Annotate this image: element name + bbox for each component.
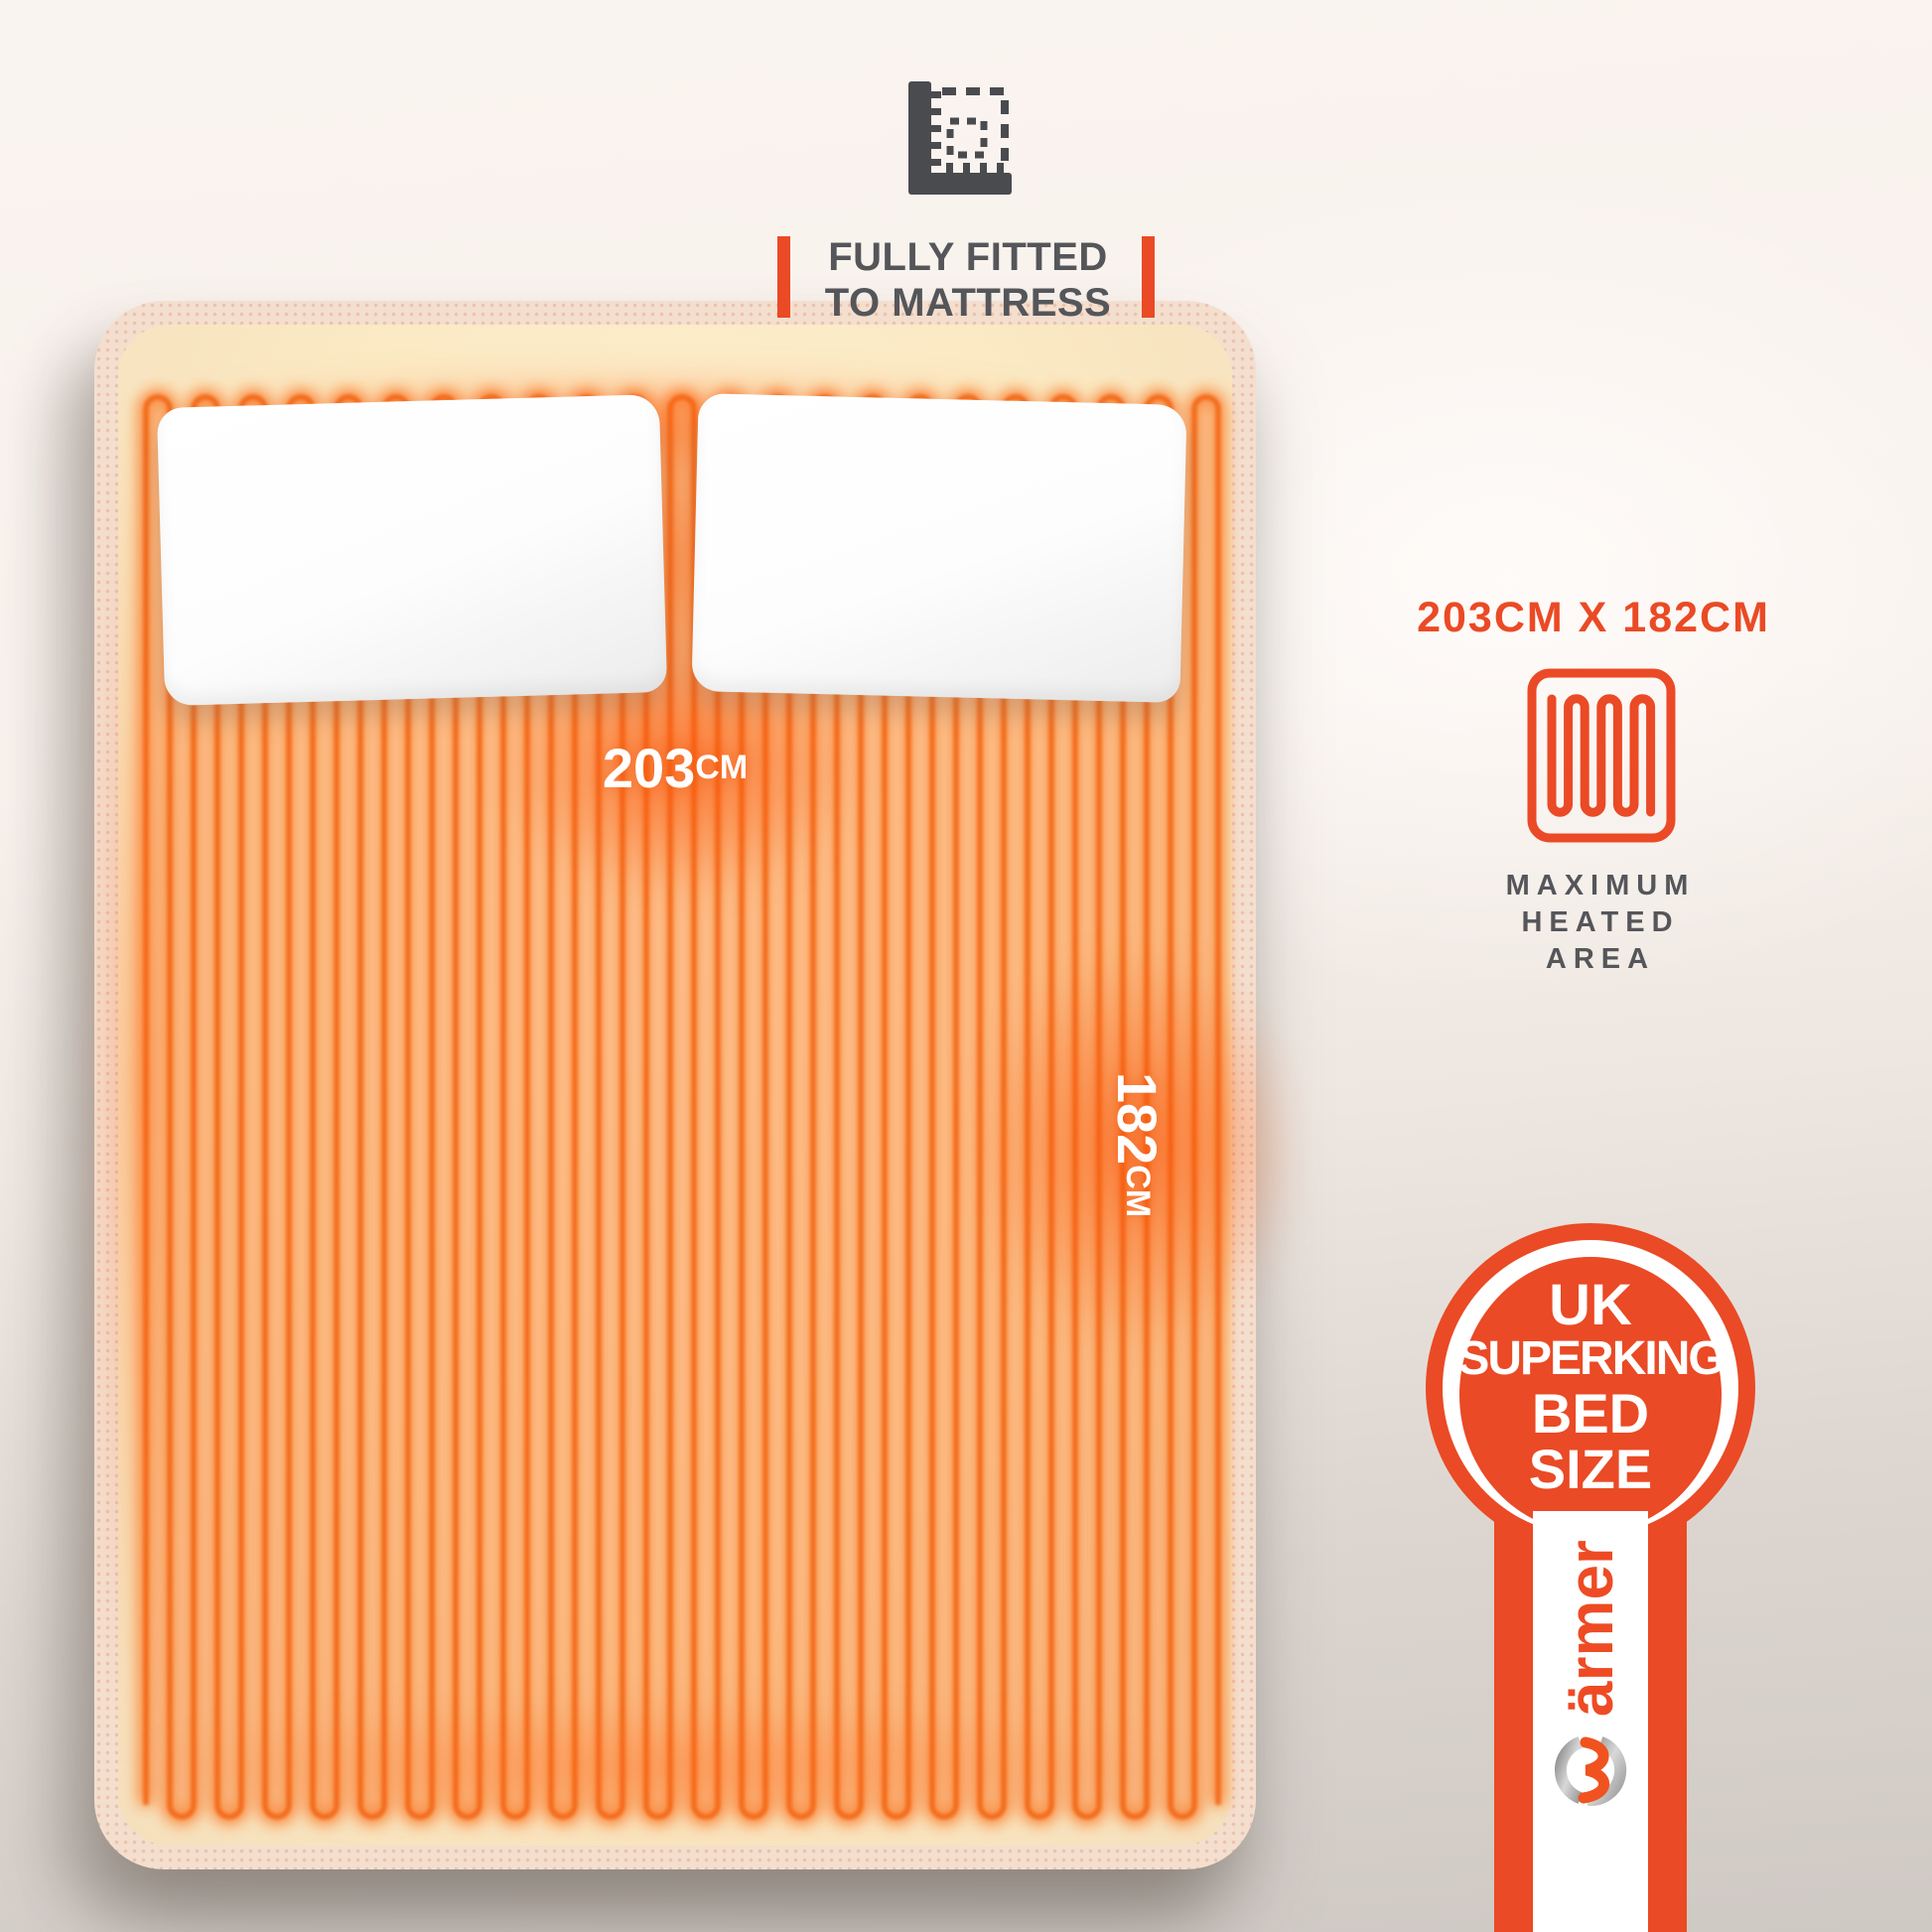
max-label-line3: AREA	[1451, 941, 1749, 978]
bed-length-unit: CM	[1119, 1165, 1158, 1217]
bed-length-label: 182CM	[1105, 1026, 1171, 1264]
corner-ruler-icon	[898, 75, 1020, 199]
fitted-note-line1: FULLY FITTED	[804, 234, 1132, 280]
heated-area-dimensions: 203CM X 182CM	[1380, 594, 1807, 642]
pillow-right	[691, 393, 1186, 703]
brand-name: ärmer	[1554, 1514, 1627, 1742]
max-label-line2: HEATED	[1451, 904, 1749, 941]
size-badge-line3: BED	[1532, 1386, 1649, 1442]
fitted-note: FULLY FITTED TO MATTRESS	[804, 234, 1132, 326]
bed-width-label: 203CM	[556, 735, 794, 800]
size-badge-line1: UK	[1549, 1279, 1632, 1332]
bed-width-value: 203	[603, 736, 695, 800]
brand-name-text: ärmer	[1554, 1540, 1627, 1717]
size-badge-line2: SUPERKING	[1457, 1332, 1723, 1386]
note-accent-bar-right	[1142, 236, 1155, 318]
heating-element-icon	[1526, 667, 1677, 844]
product-infographic: 203CM 182CM FULLY FITTED TO MATTRESS 203…	[0, 0, 1932, 1932]
max-heated-area-label: MAXIMUM HEATED AREA	[1451, 868, 1749, 978]
bed-width-unit: CM	[695, 749, 748, 787]
fitted-note-line2: TO MATTRESS	[804, 280, 1132, 326]
heat-glow-bottom	[119, 1698, 1201, 1837]
note-accent-bar-left	[777, 236, 790, 318]
warmer-w-logo	[1548, 1727, 1633, 1813]
heat-glow-left-edge	[99, 387, 169, 1777]
size-badge: UK SUPERKING BED SIZE	[1459, 1257, 1722, 1533]
max-label-line1: MAXIMUM	[1451, 868, 1749, 904]
pillow-left	[157, 394, 667, 706]
bed-length-value: 182	[1106, 1072, 1171, 1165]
size-badge-line4: SIZE	[1529, 1442, 1652, 1497]
